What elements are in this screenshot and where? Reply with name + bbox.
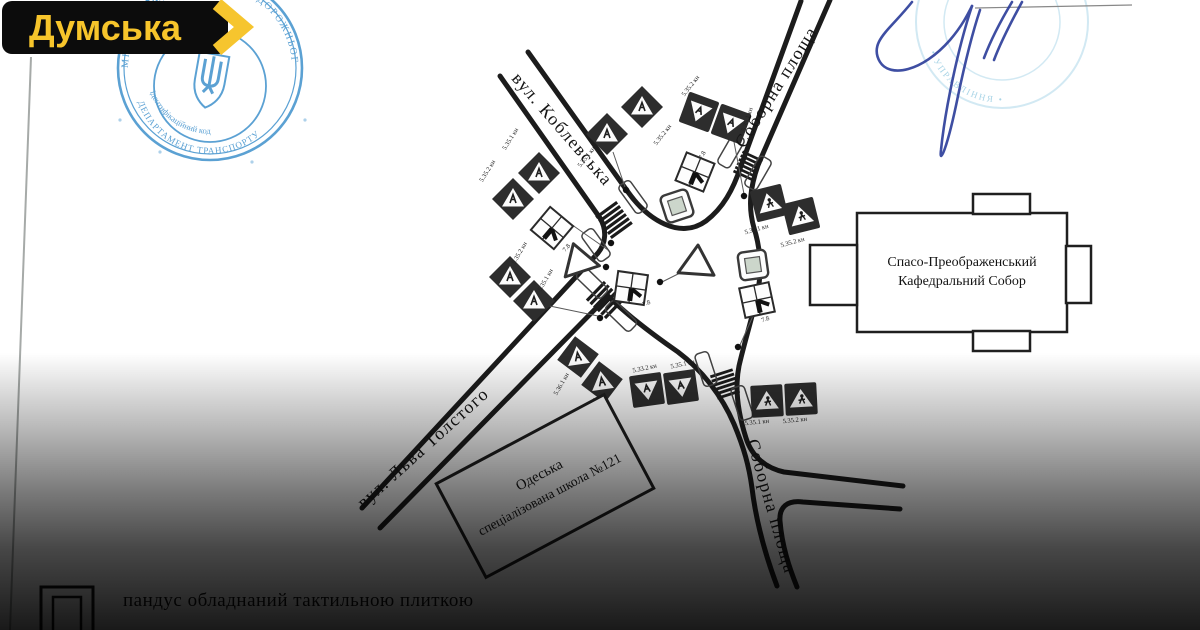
crossing-sign xyxy=(784,382,818,416)
signature-line xyxy=(975,5,1132,8)
svg-text:5.33.2 кн: 5.33.2 кн xyxy=(632,362,658,374)
cathedral-label-line2: Кафедральний Собор xyxy=(898,274,1026,289)
logo-chevron-icon xyxy=(212,0,258,56)
crossing-sign xyxy=(750,384,784,418)
cathedral-label-line1: Спасо-Преображенський xyxy=(887,255,1037,270)
warning-sign xyxy=(621,86,663,128)
svg-text:5.35.1 кн: 5.35.1 кн xyxy=(501,127,520,152)
svg-text:5.35.1 кн: 5.35.1 кн xyxy=(670,358,696,370)
crossing-sign xyxy=(663,369,699,405)
dumska-logo-text: Думська xyxy=(29,10,181,46)
hump-sign xyxy=(659,188,694,223)
social-preview-card: МІСЬКА РАДА • ОРГАНІЗАЦІЇ ДОРОЖНЬОГО РУХ… xyxy=(0,0,1200,630)
dumska-logo-badge[interactable]: Думська xyxy=(2,1,228,54)
street-label-soborna-bottom: Соборна площа xyxy=(743,437,801,576)
svg-text:5.35.1 кн: 5.35.1 кн xyxy=(744,418,770,428)
give-way-sign xyxy=(678,244,716,275)
svg-text:5.35.1 кн: 5.35.1 кн xyxy=(537,267,556,292)
cathedral-building: Спасо-Преображенський Кафедральний Собор xyxy=(810,194,1091,351)
legend-text: пандус обладнаний тактильною плиткою xyxy=(123,590,474,612)
crossing-sign xyxy=(782,197,821,236)
trident-emblem xyxy=(190,52,229,110)
svg-text:5.36.1 кн: 5.36.1 кн xyxy=(553,371,572,396)
svg-text:5.35.2 кн: 5.35.2 кн xyxy=(653,123,674,147)
marking-sign xyxy=(739,282,775,318)
scan-page-edge xyxy=(10,57,31,630)
school-building: Одеська спеціалізована школа №121 xyxy=(436,395,654,578)
svg-text:7.8: 7.8 xyxy=(760,315,770,324)
legend-row: пандус обладнаний тактильною плиткою xyxy=(38,584,474,630)
marking-sign xyxy=(614,271,648,305)
marking-sign xyxy=(675,152,714,191)
svg-text:5.35.2 кн: 5.35.2 кн xyxy=(511,240,530,265)
traffic-scheme-map: МІСЬКА РАДА • ОРГАНІЗАЦІЇ ДОРОЖНЬОГО РУХ… xyxy=(0,0,1200,630)
street-label-soborna-top: Соборна площа xyxy=(731,22,822,151)
hump-sign xyxy=(737,249,769,281)
ramp-icon xyxy=(38,584,96,630)
svg-text:5.35.2 кн: 5.35.2 кн xyxy=(478,159,497,184)
svg-text:7.8: 7.8 xyxy=(698,150,708,160)
crossing-sign xyxy=(629,372,665,408)
svg-text:5.35.2 кн: 5.35.2 кн xyxy=(780,236,806,250)
warning-sign xyxy=(518,152,560,194)
official-stamp-right: • УПРАВЛІННЯ • xyxy=(916,0,1088,108)
warning-sign xyxy=(492,178,534,220)
svg-text:7.8: 7.8 xyxy=(641,299,651,308)
svg-text:5.35.2 кн: 5.35.2 кн xyxy=(782,416,808,426)
